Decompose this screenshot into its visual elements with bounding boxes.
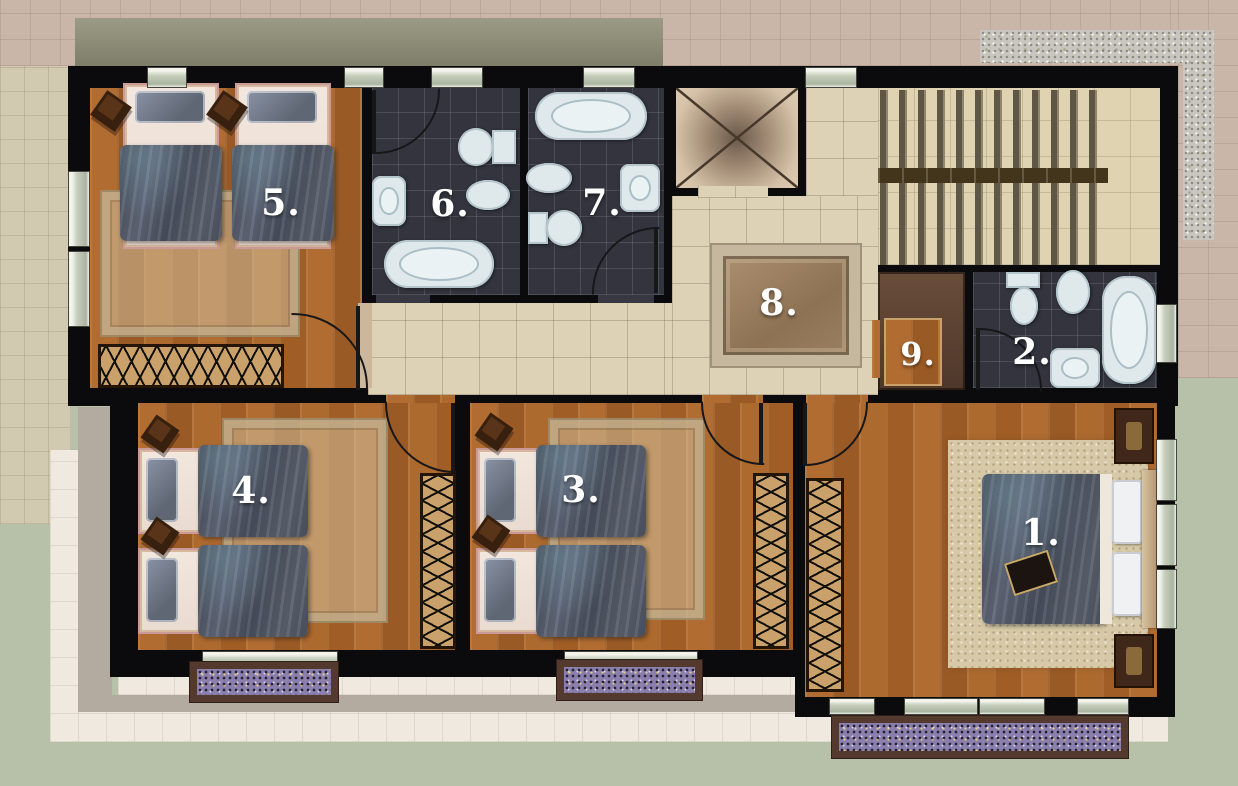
room-1-radiator bbox=[806, 478, 844, 692]
room-6-label: 6. bbox=[430, 183, 470, 225]
room-4-flower-box bbox=[190, 662, 338, 702]
room-1-door-leaf bbox=[803, 403, 807, 466]
bathroom-2-bidet bbox=[1056, 270, 1090, 314]
room-1-label: 1. bbox=[1021, 512, 1061, 554]
bathroom-7-toilet-tank bbox=[528, 212, 548, 244]
room-1-bed-sheet bbox=[1100, 474, 1112, 624]
bathroom-6-toilet-tank bbox=[492, 130, 516, 164]
room-1-pillow-bottom bbox=[1112, 552, 1142, 616]
room-1-flower-box bbox=[832, 716, 1128, 758]
bathroom-6-toilet-bowl bbox=[458, 128, 494, 166]
room-5-top-window-right bbox=[345, 68, 383, 87]
room-1-nightstand-bottom bbox=[1114, 634, 1154, 688]
roof-edge-band bbox=[75, 18, 663, 66]
bathroom-6-window bbox=[432, 68, 482, 87]
room-7-label: 7. bbox=[582, 182, 622, 224]
room-8-label: 8. bbox=[759, 282, 799, 324]
bathroom-2-window bbox=[1157, 305, 1176, 362]
room-1-pillow-top bbox=[1112, 480, 1142, 544]
room-5-left-window-top bbox=[69, 172, 89, 246]
hallway-window bbox=[806, 68, 856, 87]
elevator-shaft bbox=[676, 88, 798, 188]
bathroom-2-sink bbox=[1050, 348, 1100, 388]
room-1-right-window-3 bbox=[1157, 570, 1176, 628]
bathroom-7-bidet bbox=[526, 163, 572, 193]
room-4-bed-top bbox=[140, 450, 302, 532]
room-1-bottom-window-4 bbox=[1078, 699, 1128, 714]
floor-plan: 5. 6. 7. 8. 9. 2. 4. 3. 1. bbox=[0, 0, 1238, 786]
room-5-door-leaf bbox=[356, 306, 360, 390]
room-1-bottom-window-1 bbox=[830, 699, 874, 714]
bathroom-6-doorway bbox=[376, 295, 430, 303]
bathroom-2-toilet-tank bbox=[1006, 272, 1040, 288]
elevator-opening bbox=[698, 186, 768, 198]
walkway-vertical bbox=[50, 450, 78, 742]
room-2-label: 2. bbox=[1012, 331, 1052, 373]
room-1-nightstand-top bbox=[1114, 408, 1154, 464]
hallway-corridor bbox=[368, 303, 672, 395]
room-5-bed-left bbox=[125, 85, 217, 247]
bathroom-7-window bbox=[584, 68, 634, 87]
bathroom-7-toilet-bowl bbox=[546, 210, 582, 246]
hallway-upper bbox=[806, 88, 878, 196]
room-3-bed-top bbox=[478, 450, 640, 532]
room-1-headboard bbox=[1142, 470, 1156, 628]
stair-treads-upper bbox=[880, 90, 1104, 168]
closet-9-opening bbox=[872, 320, 880, 378]
room-1-right-window-2 bbox=[1157, 505, 1176, 565]
room-5-label: 5. bbox=[261, 182, 301, 224]
room-4-bed-bottom bbox=[140, 550, 302, 632]
room-4-radiator bbox=[420, 473, 456, 649]
bathroom-6-door-leaf bbox=[372, 90, 376, 154]
room-5-left-window-bottom bbox=[69, 252, 89, 326]
walkway-shadow-vertical bbox=[78, 407, 112, 697]
room-1-right-window-1 bbox=[1157, 440, 1176, 500]
bathroom-7-doorway bbox=[598, 295, 654, 303]
room-9-label: 9. bbox=[900, 335, 935, 373]
room-4-label: 4. bbox=[231, 470, 271, 512]
room-1-bottom-window-3 bbox=[980, 699, 1044, 714]
bathroom-6-bidet bbox=[466, 180, 510, 210]
bathroom-7-bathtub bbox=[535, 92, 647, 140]
bathroom-6-bathtub bbox=[384, 240, 494, 288]
bathroom-2-bathtub bbox=[1102, 276, 1156, 384]
bathroom-2-toilet-bowl bbox=[1010, 287, 1038, 325]
gravel-path-vertical bbox=[1183, 30, 1214, 240]
bathroom-6-sink bbox=[372, 176, 406, 226]
elevator-x-icon bbox=[676, 88, 798, 188]
stair-treads-lower bbox=[880, 183, 1100, 265]
room-3-bed-bottom bbox=[478, 550, 640, 632]
room-1-bottom-window-2 bbox=[905, 699, 977, 714]
bathroom-7-sink bbox=[620, 164, 660, 212]
room-5-radiator bbox=[98, 344, 284, 388]
room-4-door-leaf bbox=[451, 403, 455, 473]
room-3-radiator bbox=[753, 473, 789, 649]
gravel-path-horizontal bbox=[980, 30, 1188, 63]
room-3-door-leaf bbox=[759, 403, 763, 465]
stair-landing-rail bbox=[878, 168, 1108, 183]
bathroom-2-door-leaf bbox=[976, 328, 980, 390]
bathroom-7-door-leaf bbox=[654, 227, 658, 293]
room-3-flower-box bbox=[557, 660, 702, 700]
room-3-label: 3. bbox=[561, 469, 601, 511]
room-5-top-window-left bbox=[148, 68, 186, 87]
